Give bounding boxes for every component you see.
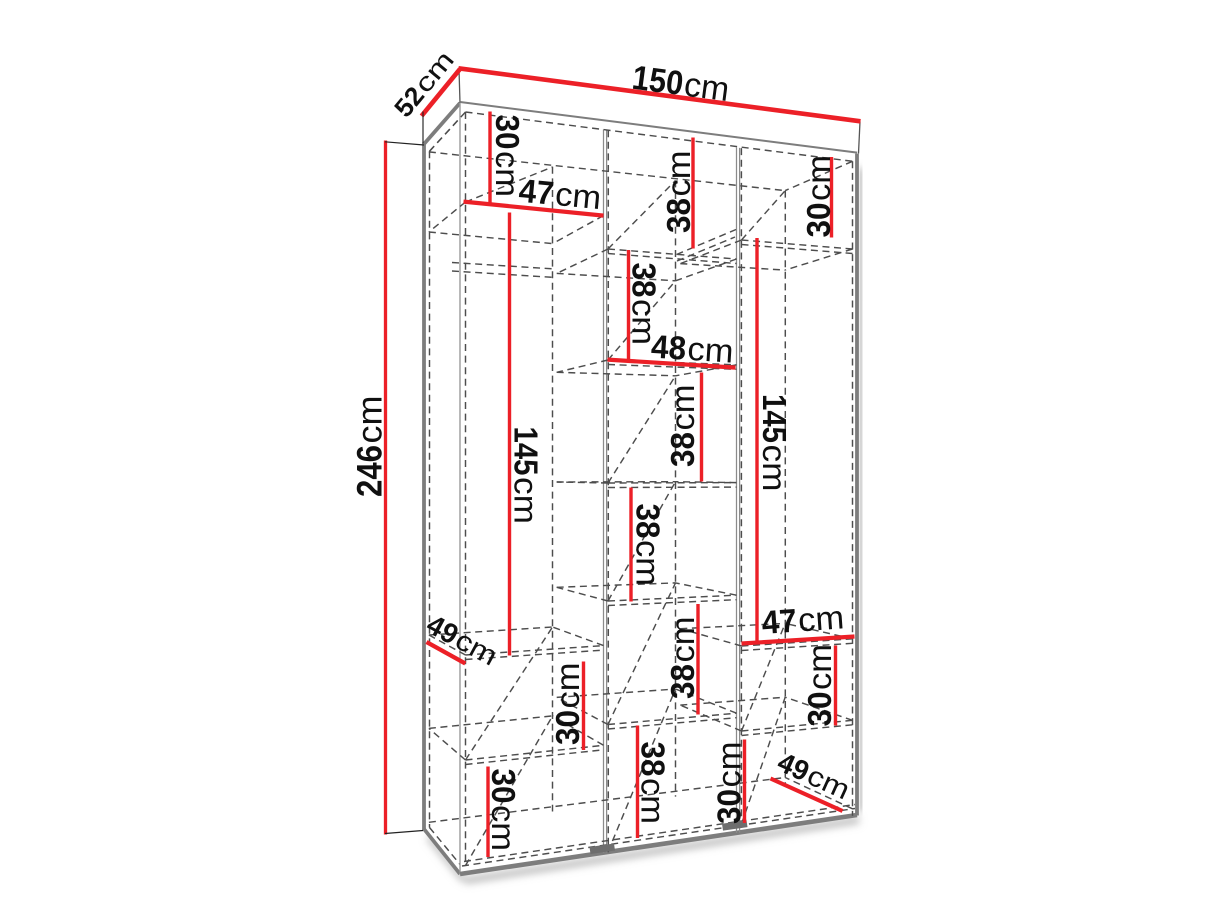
svg-text:30cm: 30cm bbox=[549, 663, 586, 746]
svg-text:38cm: 38cm bbox=[630, 504, 667, 587]
svg-text:145cm: 145cm bbox=[756, 394, 793, 492]
svg-text:47cm: 47cm bbox=[517, 172, 603, 216]
svg-text:246cm: 246cm bbox=[351, 396, 390, 498]
svg-text:38cm: 38cm bbox=[635, 742, 672, 825]
svg-text:145cm: 145cm bbox=[508, 427, 545, 525]
svg-text:30cm: 30cm bbox=[710, 742, 747, 825]
svg-text:38cm: 38cm bbox=[660, 151, 697, 234]
svg-text:30cm: 30cm bbox=[800, 155, 837, 238]
svg-text:47cm: 47cm bbox=[760, 598, 845, 641]
svg-text:38cm: 38cm bbox=[664, 385, 701, 468]
svg-text:48cm: 48cm bbox=[650, 328, 735, 370]
svg-text:38cm: 38cm bbox=[664, 617, 701, 700]
svg-text:30cm: 30cm bbox=[485, 769, 522, 852]
svg-text:30cm: 30cm bbox=[801, 644, 838, 727]
